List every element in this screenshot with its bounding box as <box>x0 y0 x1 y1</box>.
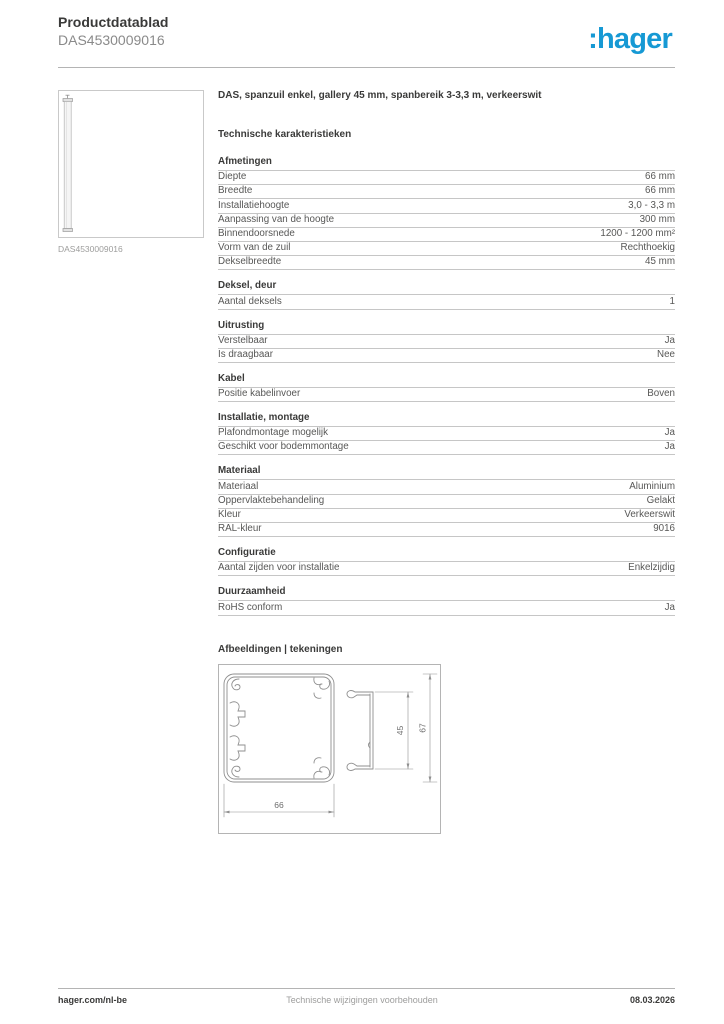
spec-row: RAL-kleur9016 <box>218 523 675 537</box>
spec-label: Plafondmontage mogelijk <box>218 427 328 438</box>
spec-value: Gelakt <box>647 495 675 506</box>
spec-section-heading: Duurzaamheid <box>218 586 675 601</box>
spec-value: 45 mm <box>645 256 675 267</box>
spec-label: Aanpassing van de hoogte <box>218 214 334 225</box>
spec-label: Aantal deksels <box>218 296 282 307</box>
technical-drawing-box: 45 67 66 <box>218 664 441 834</box>
spec-value: 9016 <box>653 523 675 534</box>
spec-value: Ja <box>665 441 675 452</box>
product-image-box <box>58 90 204 238</box>
page-title: Productdatablad <box>58 14 168 31</box>
spec-section-heading: Configuratie <box>218 547 675 562</box>
spec-row: Dekselbreedte45 mm <box>218 256 675 270</box>
dim-height-label: 67 <box>418 723 428 733</box>
spec-label: Geschikt voor bodemmontage <box>218 441 349 452</box>
spec-row: Breedte66 mm <box>218 185 675 199</box>
dim-cover-label: 45 <box>395 725 405 735</box>
spec-section: MateriaalMateriaalAluminiumOppervlaktebe… <box>218 465 675 537</box>
spec-section-heading: Installatie, montage <box>218 412 675 427</box>
drawings-title: Afbeeldingen | tekeningen <box>218 644 675 656</box>
spec-section-heading: Deksel, deur <box>218 280 675 295</box>
main-content: DAS, spanzuil enkel, gallery 45 mm, span… <box>218 90 675 834</box>
spec-section-heading: Kabel <box>218 373 675 388</box>
product-reference: DAS4530009016 <box>58 32 165 49</box>
datasheet-page: Productdatablad DAS4530009016 :hager DAS… <box>0 0 724 1024</box>
spec-section: Installatie, montagePlafondmontage mogel… <box>218 412 675 455</box>
spec-section: AfmetingenDiepte66 mmBreedte66 mmInstall… <box>218 156 675 270</box>
spec-section-heading: Uitrusting <box>218 320 675 335</box>
dim-width-label: 66 <box>274 800 284 810</box>
spec-value: Verkeerswit <box>624 509 675 520</box>
spec-value: Enkelzijdig <box>628 562 675 573</box>
spec-value: 66 mm <box>645 171 675 182</box>
spec-label: Positie kabelinvoer <box>218 388 300 399</box>
spec-row: Installatiehoogte3,0 - 3,3 m <box>218 199 675 213</box>
spec-label: Installatiehoogte <box>218 200 289 211</box>
spec-row: VerstelbaarJa <box>218 335 675 349</box>
hager-logo: :hager <box>588 24 672 54</box>
spec-label: Verstelbaar <box>218 335 268 346</box>
spec-value: Ja <box>665 335 675 346</box>
spec-section: DuurzaamheidRoHS conformJa <box>218 586 675 615</box>
spec-row: RoHS conformJa <box>218 601 675 615</box>
spec-label: Oppervlaktebehandeling <box>218 495 324 506</box>
spec-section-heading: Afmetingen <box>218 156 675 171</box>
spec-value: Boven <box>647 388 675 399</box>
spec-section: ConfiguratieAantal zijden voor installat… <box>218 547 675 576</box>
spec-label: Vorm van de zuil <box>218 242 290 253</box>
spec-value: 1 <box>670 296 675 307</box>
spec-row: Plafondmontage mogelijkJa <box>218 427 675 441</box>
spec-value: 300 mm <box>640 214 675 225</box>
spec-value: 1200 - 1200 mm² <box>600 228 675 239</box>
technical-characteristics-title: Technische karakteristieken <box>218 129 675 141</box>
technical-drawing-svg: 45 67 66 <box>219 665 440 833</box>
spec-row: Aanpassing van de hoogte300 mm <box>218 214 675 228</box>
spec-label: Kleur <box>218 509 241 520</box>
spec-section: KabelPositie kabelinvoerBoven <box>218 373 675 402</box>
footer-divider <box>58 988 675 989</box>
spec-label: Materiaal <box>218 481 258 492</box>
footer-site: hager.com/nl-be <box>58 995 127 1005</box>
spec-row: Aantal deksels1 <box>218 295 675 309</box>
spec-sections: AfmetingenDiepte66 mmBreedte66 mmInstall… <box>218 156 675 616</box>
spec-value: Aluminium <box>629 481 675 492</box>
spec-section: Deksel, deurAantal deksels1 <box>218 280 675 309</box>
spec-label: Diepte <box>218 171 246 182</box>
spec-value: 66 mm <box>645 185 675 196</box>
spec-value: 3,0 - 3,3 m <box>628 200 675 211</box>
spec-row: OppervlaktebehandelingGelakt <box>218 495 675 509</box>
header-divider <box>58 67 675 68</box>
product-image-caption: DAS4530009016 <box>58 244 123 254</box>
spec-value: Nee <box>657 349 675 360</box>
spec-label: Aantal zijden voor installatie <box>218 562 339 573</box>
product-photo-pole <box>59 91 203 237</box>
footer-date: 08.03.2026 <box>630 995 675 1005</box>
spec-label: RoHS conform <box>218 602 282 613</box>
spec-label: Is draagbaar <box>218 349 273 360</box>
spec-row: Positie kabelinvoerBoven <box>218 388 675 402</box>
spec-row: KleurVerkeerswit <box>218 509 675 523</box>
spec-label: Dekselbreedte <box>218 256 281 267</box>
spec-section: UitrustingVerstelbaarJaIs draagbaarNee <box>218 320 675 363</box>
spec-value: Ja <box>665 602 675 613</box>
spec-value: Ja <box>665 427 675 438</box>
spec-label: Breedte <box>218 185 252 196</box>
spec-label: RAL-kleur <box>218 523 262 534</box>
spec-value: Rechthoekig <box>621 242 675 253</box>
spec-row: Is draagbaarNee <box>218 349 675 363</box>
spec-row: MateriaalAluminium <box>218 480 675 494</box>
spec-row: Geschikt voor bodemmontageJa <box>218 441 675 455</box>
spec-row: Diepte66 mm <box>218 171 675 185</box>
spec-row: Aantal zijden voor installatieEnkelzijdi… <box>218 562 675 576</box>
product-description: DAS, spanzuil enkel, gallery 45 mm, span… <box>218 90 675 102</box>
spec-row: Binnendoorsnede1200 - 1200 mm² <box>218 228 675 242</box>
spec-row: Vorm van de zuilRechthoekig <box>218 242 675 256</box>
spec-label: Binnendoorsnede <box>218 228 295 239</box>
spec-section-heading: Materiaal <box>218 465 675 480</box>
